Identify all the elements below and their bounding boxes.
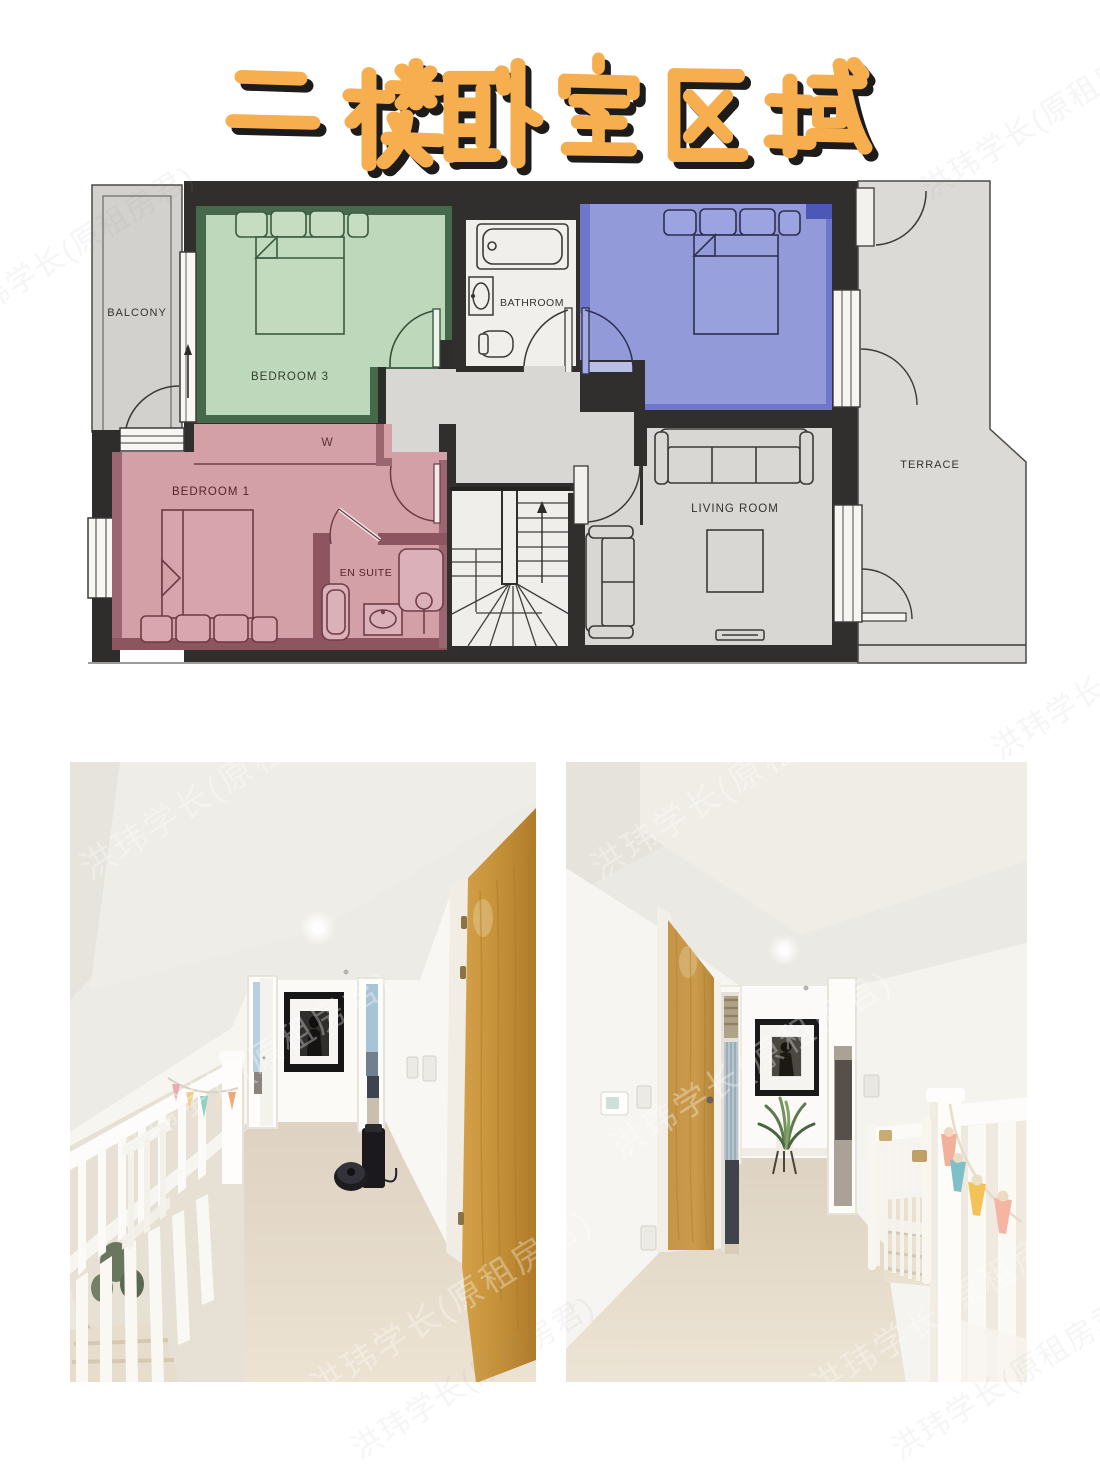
svg-text:洪玮学长(原租房君): 洪玮学长(原租房君) bbox=[916, 30, 1100, 206]
svg-text:TERRACE: TERRACE bbox=[900, 459, 960, 471]
svg-text:LIVING ROOM: LIVING ROOM bbox=[691, 503, 779, 515]
svg-text:W: W bbox=[321, 435, 333, 449]
svg-text:EN SUITE: EN SUITE bbox=[340, 567, 392, 579]
svg-text:BATHROOM: BATHROOM bbox=[500, 297, 564, 309]
svg-text:BALCONY: BALCONY bbox=[107, 307, 167, 319]
svg-text:BEDROOM 3: BEDROOM 3 bbox=[251, 371, 329, 383]
svg-text:BEDROOM 1: BEDROOM 1 bbox=[172, 486, 250, 498]
